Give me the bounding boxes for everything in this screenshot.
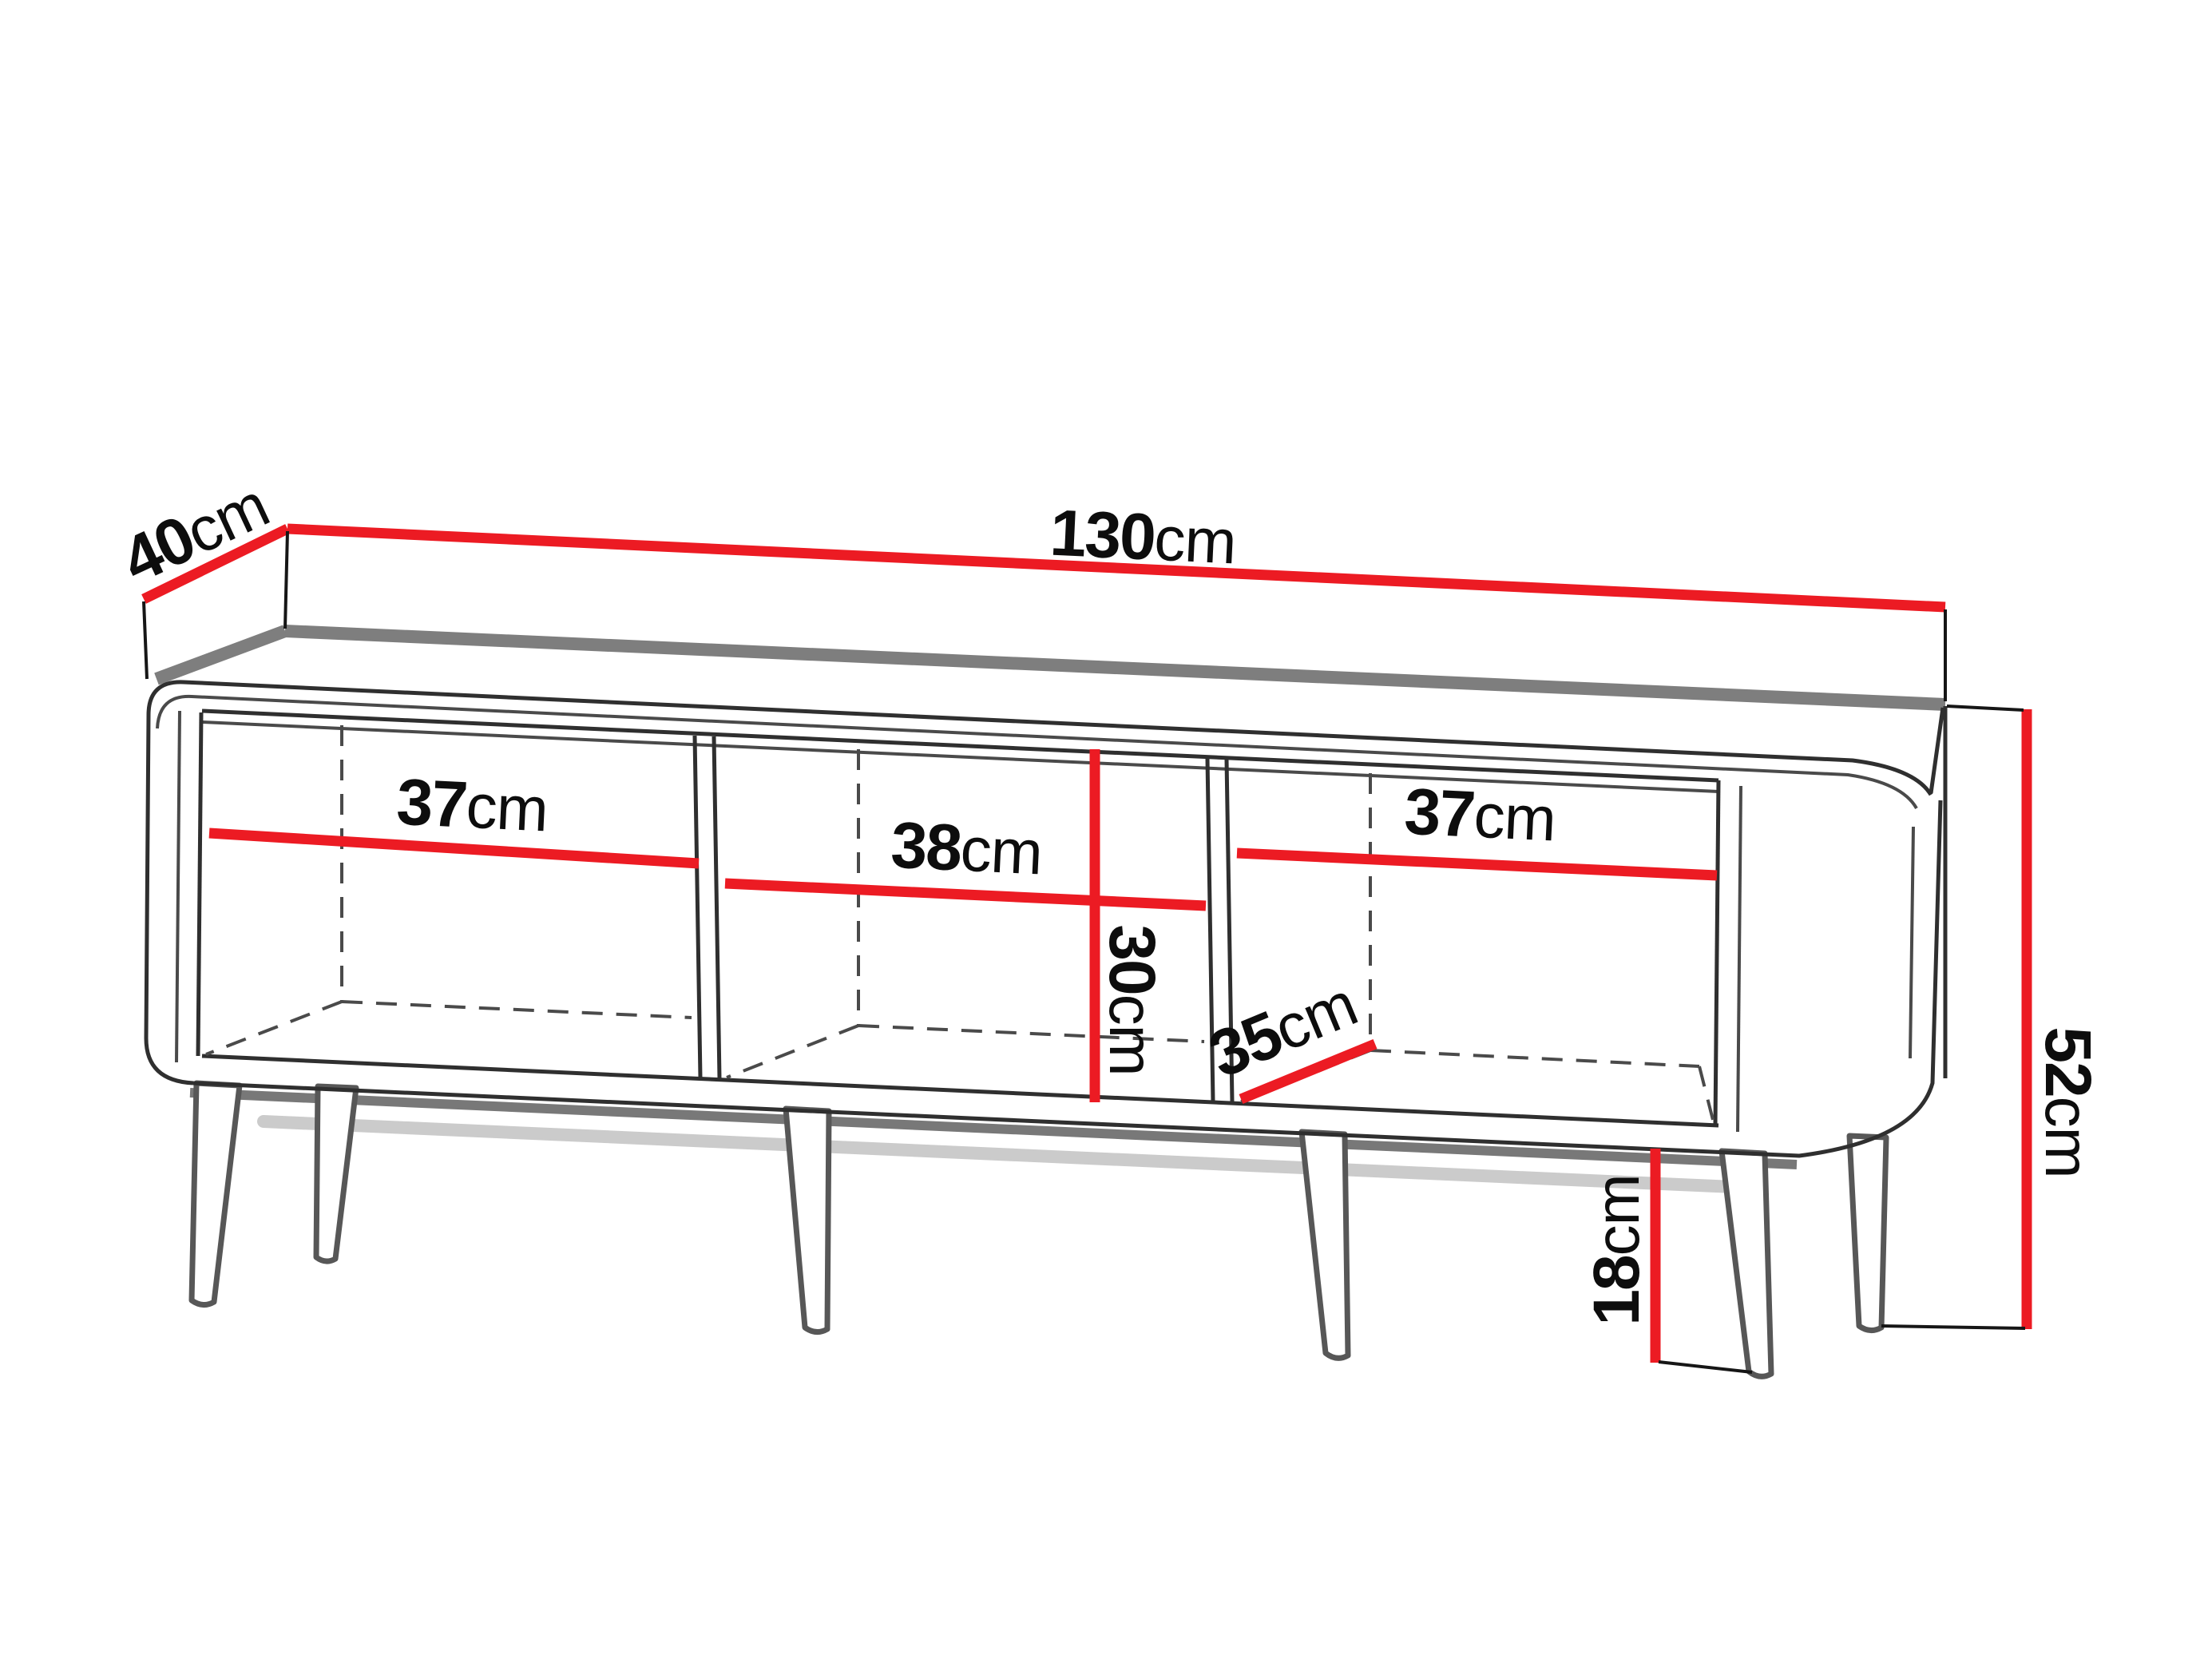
label-left-compartment-width: 37cm — [395, 766, 549, 846]
label-overall-height: 52cm — [2032, 1026, 2104, 1177]
extension-leg-bottom — [1659, 1362, 1752, 1372]
leg-back-left — [316, 1086, 356, 1261]
label-right-compartment-width: 37cm — [1403, 776, 1557, 855]
extension-height-top — [1947, 706, 2024, 710]
extension-depth-end — [144, 601, 147, 679]
label-leg-height: 18cm — [1580, 1174, 1653, 1325]
label-compartment-height: 30cm — [1096, 924, 1168, 1075]
diagram-canvas: 40cm 130cm 37cm 38cm 37cm 30cm 35cm 52cm… — [0, 0, 2212, 1659]
label-middle-compartment-width: 38cm — [890, 809, 1044, 889]
extension-height-bottom — [1881, 1326, 2025, 1328]
furniture-dimension-diagram: 40cm 130cm 37cm 38cm 37cm 30cm 35cm 52cm… — [0, 0, 2212, 1659]
leg-front-left — [192, 1083, 240, 1305]
label-overall-width: 130cm — [1049, 497, 1238, 578]
leg-back-right — [1849, 1136, 1886, 1331]
extension-apex — [285, 531, 287, 629]
leg-front-right — [1722, 1151, 1771, 1376]
leg-front-center-left — [786, 1109, 829, 1332]
leg-front-center-right — [1302, 1132, 1348, 1358]
